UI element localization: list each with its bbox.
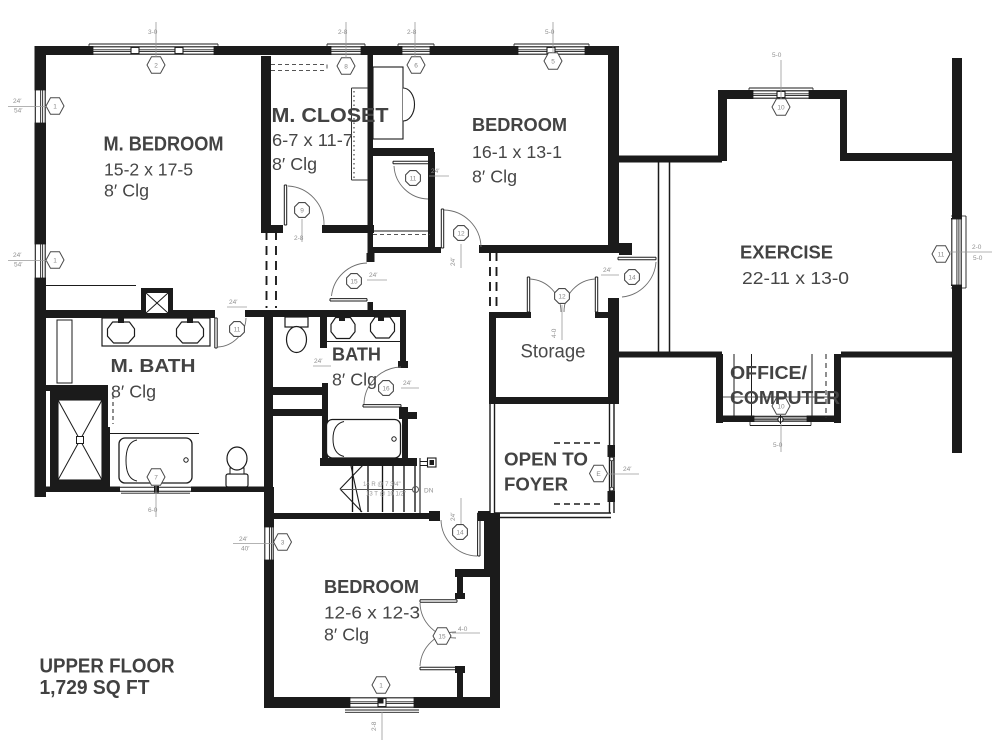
svg-text:7: 7 bbox=[154, 474, 158, 481]
svg-text:E: E bbox=[596, 471, 601, 478]
svg-text:2-8: 2-8 bbox=[371, 721, 378, 731]
svg-text:6: 6 bbox=[414, 62, 418, 69]
svg-text:2-0: 2-0 bbox=[972, 244, 982, 251]
svg-text:M. BEDROOM: M. BEDROOM bbox=[104, 134, 224, 156]
svg-text:5-0: 5-0 bbox=[773, 442, 783, 449]
svg-text:1,729 SQ FT: 1,729 SQ FT bbox=[40, 677, 150, 699]
svg-text:54′: 54′ bbox=[14, 262, 23, 269]
svg-text:2-8: 2-8 bbox=[407, 29, 417, 36]
svg-text:24′: 24′ bbox=[13, 252, 22, 259]
svg-text:1: 1 bbox=[53, 257, 57, 264]
svg-text:M. BATH: M. BATH bbox=[111, 356, 196, 376]
svg-text:1: 1 bbox=[379, 682, 383, 689]
svg-text:24′: 24′ bbox=[369, 272, 378, 279]
svg-text:24′: 24′ bbox=[623, 466, 632, 473]
svg-text:40′: 40′ bbox=[241, 546, 250, 553]
svg-text:6-7 x 11-7: 6-7 x 11-7 bbox=[272, 130, 353, 150]
svg-text:12: 12 bbox=[558, 293, 566, 300]
svg-text:8′ Clg: 8′ Clg bbox=[332, 370, 377, 390]
svg-text:24′: 24′ bbox=[431, 168, 440, 175]
svg-text:UPPER FLOOR: UPPER FLOOR bbox=[40, 656, 176, 678]
svg-text:4-0: 4-0 bbox=[551, 328, 558, 338]
svg-text:6-0: 6-0 bbox=[148, 507, 158, 514]
svg-text:2-8: 2-8 bbox=[294, 235, 304, 242]
svg-text:16-1 x 13-1: 16-1 x 13-1 bbox=[472, 142, 562, 162]
svg-text:5-0: 5-0 bbox=[545, 29, 555, 36]
svg-text:EXERCISE: EXERCISE bbox=[740, 243, 833, 263]
svg-text:15-2 x 17-5: 15-2 x 17-5 bbox=[104, 160, 193, 180]
svg-text:2-8: 2-8 bbox=[338, 29, 348, 36]
svg-text:2: 2 bbox=[154, 62, 158, 69]
svg-text:OFFICE/: OFFICE/ bbox=[730, 363, 807, 383]
svg-text:5-0: 5-0 bbox=[772, 52, 782, 59]
svg-text:14 R @ 7 3/4": 14 R @ 7 3/4" bbox=[363, 482, 401, 488]
svg-text:11: 11 bbox=[410, 175, 417, 182]
svg-text:24′: 24′ bbox=[403, 380, 412, 387]
svg-text:3-0: 3-0 bbox=[148, 29, 158, 36]
svg-text:5-0: 5-0 bbox=[973, 255, 983, 262]
svg-text:M. CLOSET: M. CLOSET bbox=[272, 105, 389, 127]
svg-text:OPEN TO: OPEN TO bbox=[504, 450, 588, 470]
svg-text:24′: 24′ bbox=[13, 98, 22, 105]
svg-text:24′: 24′ bbox=[314, 358, 323, 365]
svg-text:24′: 24′ bbox=[450, 512, 457, 521]
svg-text:8′ Clg: 8′ Clg bbox=[111, 382, 156, 402]
svg-text:24′: 24′ bbox=[239, 536, 248, 543]
svg-text:Storage: Storage bbox=[521, 342, 586, 363]
svg-text:8′ Clg: 8′ Clg bbox=[324, 625, 369, 645]
svg-text:5: 5 bbox=[551, 58, 555, 65]
svg-text:DN: DN bbox=[424, 488, 434, 495]
svg-text:16: 16 bbox=[382, 385, 390, 392]
svg-text:14: 14 bbox=[456, 529, 464, 536]
svg-text:BATH: BATH bbox=[332, 345, 381, 365]
svg-text:4-0: 4-0 bbox=[458, 626, 468, 633]
svg-text:8′ Clg: 8′ Clg bbox=[272, 154, 317, 174]
svg-text:9: 9 bbox=[300, 207, 304, 214]
svg-text:22-11 x 13-0: 22-11 x 13-0 bbox=[742, 268, 849, 288]
svg-text:13 T @ 10 1/2": 13 T @ 10 1/2" bbox=[366, 492, 406, 498]
svg-text:24′: 24′ bbox=[450, 257, 457, 266]
svg-text:24′: 24′ bbox=[603, 267, 612, 274]
svg-text:15: 15 bbox=[438, 633, 446, 640]
svg-text:COMPUTER: COMPUTER bbox=[730, 388, 840, 408]
svg-text:12: 12 bbox=[457, 230, 465, 237]
svg-text:12-6 x 12-3: 12-6 x 12-3 bbox=[324, 603, 420, 623]
svg-text:11: 11 bbox=[938, 251, 945, 258]
svg-text:11: 11 bbox=[234, 326, 241, 333]
svg-text:15: 15 bbox=[350, 278, 358, 285]
svg-text:8: 8 bbox=[344, 63, 348, 70]
svg-text:BEDROOM: BEDROOM bbox=[324, 577, 419, 597]
svg-text:24′: 24′ bbox=[229, 299, 238, 306]
svg-text:3: 3 bbox=[281, 539, 285, 546]
svg-text:54′: 54′ bbox=[14, 108, 23, 115]
svg-text:FOYER: FOYER bbox=[504, 475, 568, 495]
svg-text:8′ Clg: 8′ Clg bbox=[472, 167, 517, 187]
svg-text:8′ Clg: 8′ Clg bbox=[104, 181, 149, 201]
svg-text:10: 10 bbox=[777, 104, 785, 111]
svg-text:14: 14 bbox=[628, 274, 636, 281]
svg-text:BEDROOM: BEDROOM bbox=[472, 115, 567, 135]
svg-text:1: 1 bbox=[53, 103, 57, 110]
